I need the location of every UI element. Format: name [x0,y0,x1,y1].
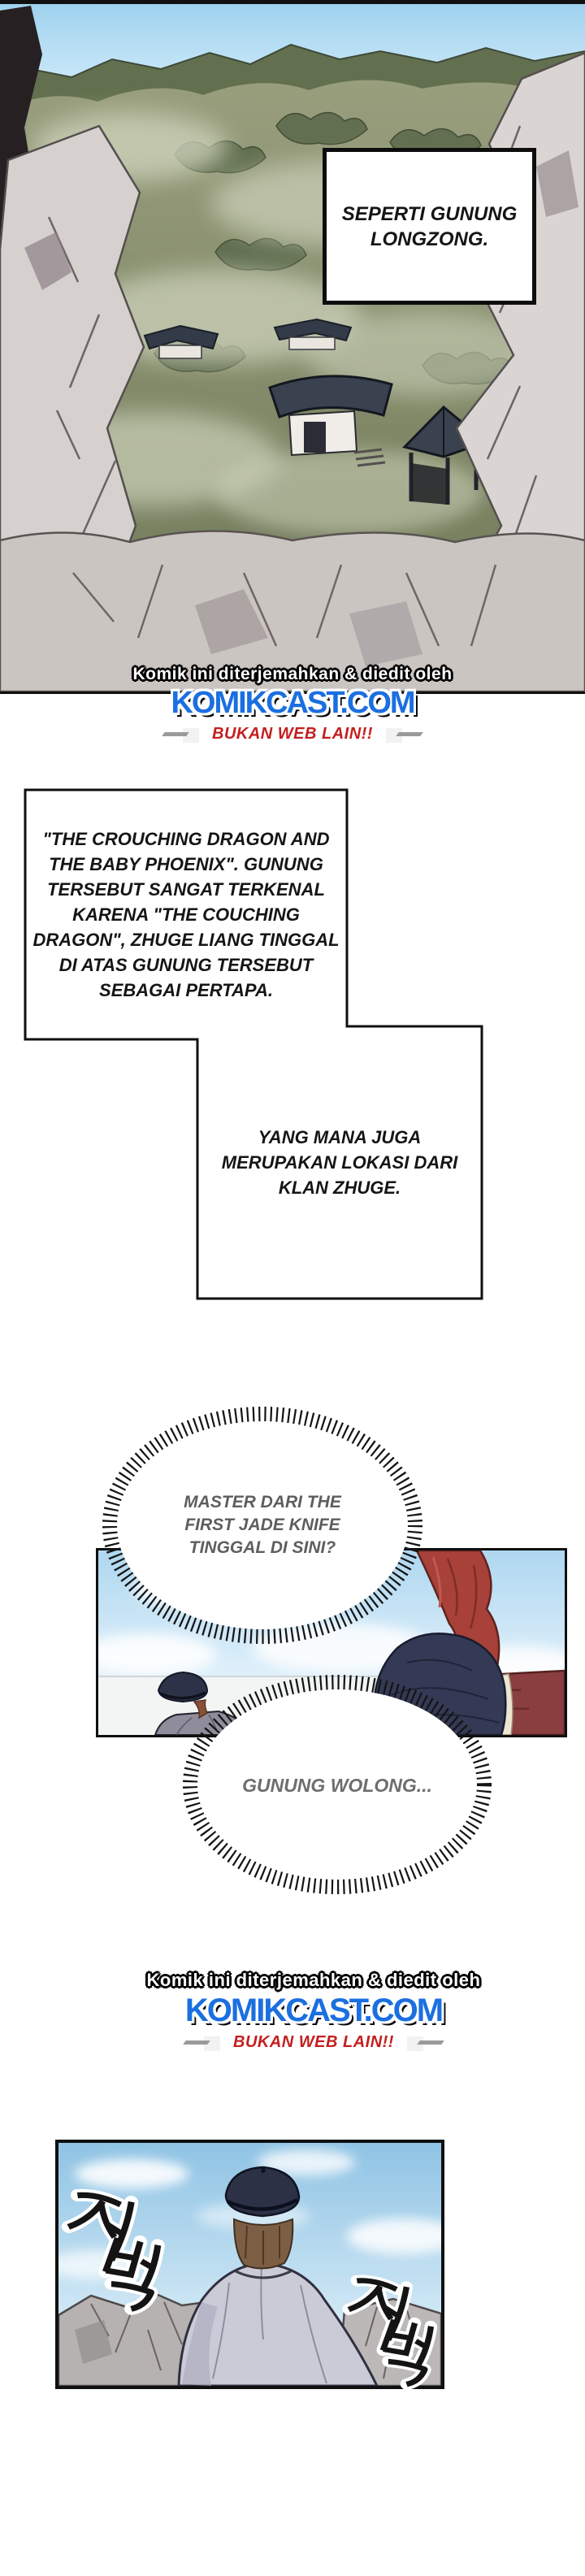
panel1-art [0,4,585,692]
watermark-tagline-text: BUKAN WEB LAIN!! [212,725,373,743]
watermark-tagline-band: BUKAN WEB LAIN!! [199,724,386,745]
narration-klan-zhuge-text: YANG MANA JUGA MERUPAKAN LOKASI DARI KLA… [197,1026,482,1299]
panel-sky-figures [96,1548,567,1737]
panel2-art [98,1550,565,1735]
watermark-credit-text: Komik ini diterjemahkan & diedit oleh [147,1970,481,1991]
watermark-tagline-text: BUKAN WEB LAIN!! [233,2033,394,2051]
watermark-site-text: KOMIKCAST.COM [185,1993,442,2029]
watermark-komikcast-2: Komik ini diterjemahkan & diedit oleh KO… [0,1970,585,2053]
panel-mountain-landscape [0,0,585,694]
narration-crouching-dragon-text: "THE CROUCHING DRAGON AND THE BABY PHOEN… [25,790,347,1039]
comic-page: SEPERTI GUNUNG LONGZONG. Komik ini diter… [0,0,585,2576]
watermark-tagline-band: BUKAN WEB LAIN!! [220,2032,407,2053]
narration-box [25,790,482,1299]
panel-old-man-walking [55,2140,444,2389]
speech-box-longzong [323,148,536,305]
panel3-art [58,2143,441,2386]
